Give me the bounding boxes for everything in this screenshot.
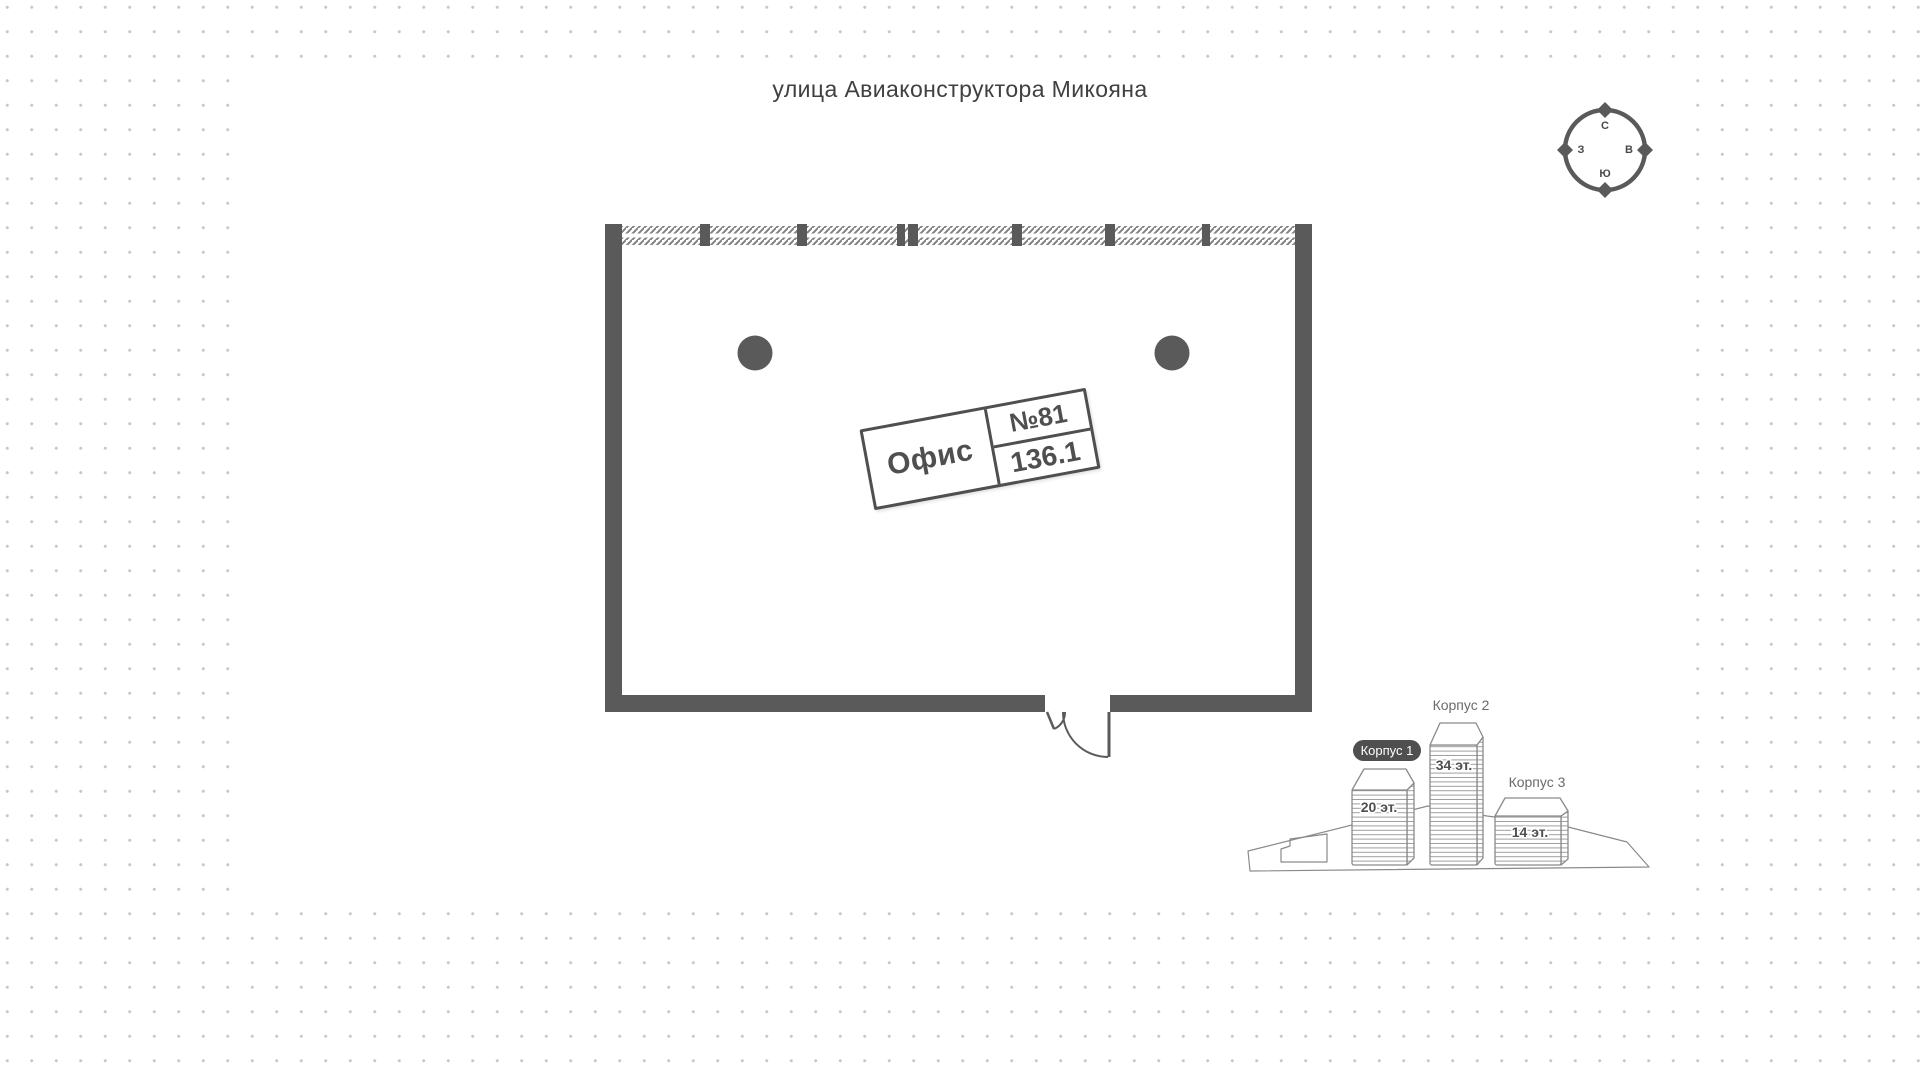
wall-bottom-left-segment xyxy=(605,695,1045,712)
page-background: { "street": { "label": "улица Авиаконстр… xyxy=(0,0,1920,1078)
compass-west-label: З xyxy=(1578,144,1585,156)
building-tower-korpus-1[interactable]: 20 эт. xyxy=(1352,769,1414,865)
compass-icon: С В Ю З xyxy=(1555,100,1655,200)
building-tower-korpus-2[interactable]: 34 эт. xyxy=(1430,723,1483,865)
column-icon xyxy=(1155,336,1190,371)
korpus-2-floors-label: 34 эт. xyxy=(1436,757,1473,773)
korpus-1-name-label: Корпус 1 xyxy=(1361,743,1414,758)
column-icon xyxy=(738,336,773,371)
korpus-3-name-label[interactable]: Корпус 3 xyxy=(1509,774,1566,790)
street-name-label: улица Авиаконструктора Микояна xyxy=(590,76,1330,103)
wall-left xyxy=(605,224,622,712)
office-number-column: №81 136.1 xyxy=(984,391,1097,484)
compass-east-label: В xyxy=(1625,144,1633,156)
wall-right xyxy=(1295,224,1312,712)
low-building-outline xyxy=(1281,834,1327,862)
buildings-minimap: 34 эт. Корпус 2 20 эт. 14 эт. Корпус 3 К… xyxy=(1230,690,1670,880)
door-swing-icon xyxy=(1047,712,1109,757)
compass-south-label: Ю xyxy=(1599,168,1610,180)
korpus-1-floors-label: 20 эт. xyxy=(1361,799,1398,815)
korpus-3-floors-label: 14 эт. xyxy=(1512,824,1549,840)
compass-north-label: С xyxy=(1601,120,1609,132)
korpus-2-name-label[interactable]: Корпус 2 xyxy=(1433,697,1490,713)
korpus-1-selected-badge[interactable]: Корпус 1 xyxy=(1353,740,1421,761)
building-tower-korpus-3[interactable]: 14 эт. xyxy=(1495,798,1568,865)
